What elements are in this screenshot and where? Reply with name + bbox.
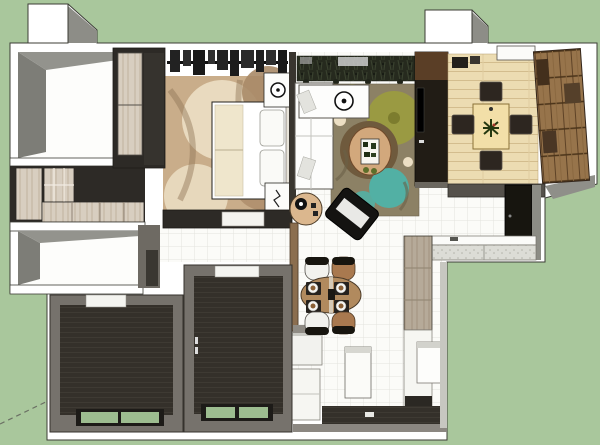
balcony-dark-floor (322, 406, 445, 427)
walk-in-closet (10, 166, 145, 231)
sprig (363, 167, 369, 173)
door-opening (215, 266, 259, 277)
bottom-wall (10, 222, 145, 231)
chair-back (305, 327, 329, 335)
tray-center (342, 99, 347, 104)
bottom-wall-face (293, 424, 447, 432)
plant-pot (364, 152, 370, 157)
plant-pot (363, 142, 368, 147)
hanging-garment (217, 50, 228, 70)
small-item (313, 211, 318, 216)
cabinet-base (415, 182, 448, 188)
living-room (290, 56, 421, 242)
faucet (450, 237, 458, 241)
floor-item (470, 56, 480, 64)
side-table (290, 193, 322, 225)
door-hinge-mark (195, 337, 198, 344)
hanging-garment (256, 50, 264, 72)
food (339, 304, 344, 309)
island-cabinet (345, 347, 371, 398)
rug-flower-center (388, 112, 400, 124)
food (339, 286, 344, 291)
food (311, 304, 316, 309)
floor-mark (365, 412, 374, 417)
storage-room-upper-left (10, 52, 122, 166)
curtain-gap (338, 57, 368, 66)
plant-pot (371, 143, 376, 149)
wardrobe-doors (118, 53, 142, 155)
wood-bookshelf (533, 49, 589, 184)
bedroom-3 (184, 265, 292, 432)
small-item (311, 203, 316, 208)
cabinet-wood-top (415, 52, 448, 80)
right-wall-face (440, 262, 447, 428)
sprig (371, 168, 377, 174)
table-dot (489, 107, 493, 111)
plant-pot (371, 153, 376, 157)
bowl-center (299, 202, 303, 206)
window-pane (239, 407, 268, 418)
duct-top-right (425, 10, 472, 43)
hallway-floor (158, 225, 292, 262)
shelf-dark-cell (564, 83, 581, 104)
floor-item (452, 57, 468, 68)
dark-floor (194, 276, 283, 414)
tv-screen (417, 88, 424, 132)
white-cabinet (497, 46, 535, 60)
chair-back (332, 257, 355, 265)
counter-back-edge (432, 236, 536, 245)
bedroom-2 (50, 295, 183, 432)
clock-center (276, 88, 280, 92)
shelf-dark-cell (542, 130, 558, 153)
chair-back (332, 326, 355, 334)
cabinet-knob (509, 215, 512, 218)
hanging-garment (208, 50, 215, 64)
hanging-garment (193, 50, 205, 75)
dark-floor (60, 305, 173, 415)
window-pane (121, 412, 159, 423)
closet-cabinet-bottom (42, 202, 144, 222)
floor-plan-canvas (0, 0, 600, 445)
floor-cushion (510, 115, 532, 134)
tatami-room (448, 46, 590, 197)
pillow (260, 110, 284, 146)
closet-cabinet-left (16, 168, 42, 220)
door-hinge-mark (195, 347, 198, 354)
shelf-dark-cell (536, 59, 550, 86)
low-tea-table (473, 104, 509, 149)
nightstand-bottom (265, 183, 292, 213)
floor-cushion (480, 82, 502, 101)
tv-wall (415, 52, 448, 188)
wardrobe-dark-panel (144, 53, 164, 165)
bottom-wall (10, 285, 143, 294)
storage-room-lower-left (10, 225, 160, 294)
tall-cabinet (404, 236, 432, 330)
door-opening (86, 295, 126, 307)
foot-cabinet (222, 212, 264, 226)
rug-cream-dot (403, 157, 413, 167)
hanging-garment (170, 50, 180, 72)
fridge-top (417, 342, 442, 348)
window-pane (206, 407, 235, 418)
island-top-edge (345, 347, 371, 353)
coffee-table (349, 127, 391, 175)
hanging-garment (241, 50, 254, 68)
black-corner-cabinet (505, 185, 532, 237)
floor-cushion (452, 115, 474, 134)
table-top (290, 193, 322, 225)
bottom-wall (10, 158, 122, 166)
curtain-gap (300, 57, 312, 64)
hanging-garment (230, 50, 239, 76)
left-wall-face (18, 52, 46, 158)
hanging-garment (266, 50, 276, 65)
food (311, 286, 316, 291)
plant-flower (493, 124, 496, 127)
duct-top-left (28, 4, 68, 43)
window-pane (81, 412, 118, 423)
refrigerator (417, 342, 442, 383)
door-panel (146, 250, 158, 286)
floor-cushion (480, 151, 502, 170)
hanging-garment (183, 50, 191, 66)
chair-back (305, 257, 329, 265)
floor-plan-render (0, 0, 600, 445)
pillow (260, 150, 284, 186)
centerpiece (328, 289, 335, 300)
cabinet-handle (419, 140, 424, 143)
hanging-garment (278, 50, 287, 74)
